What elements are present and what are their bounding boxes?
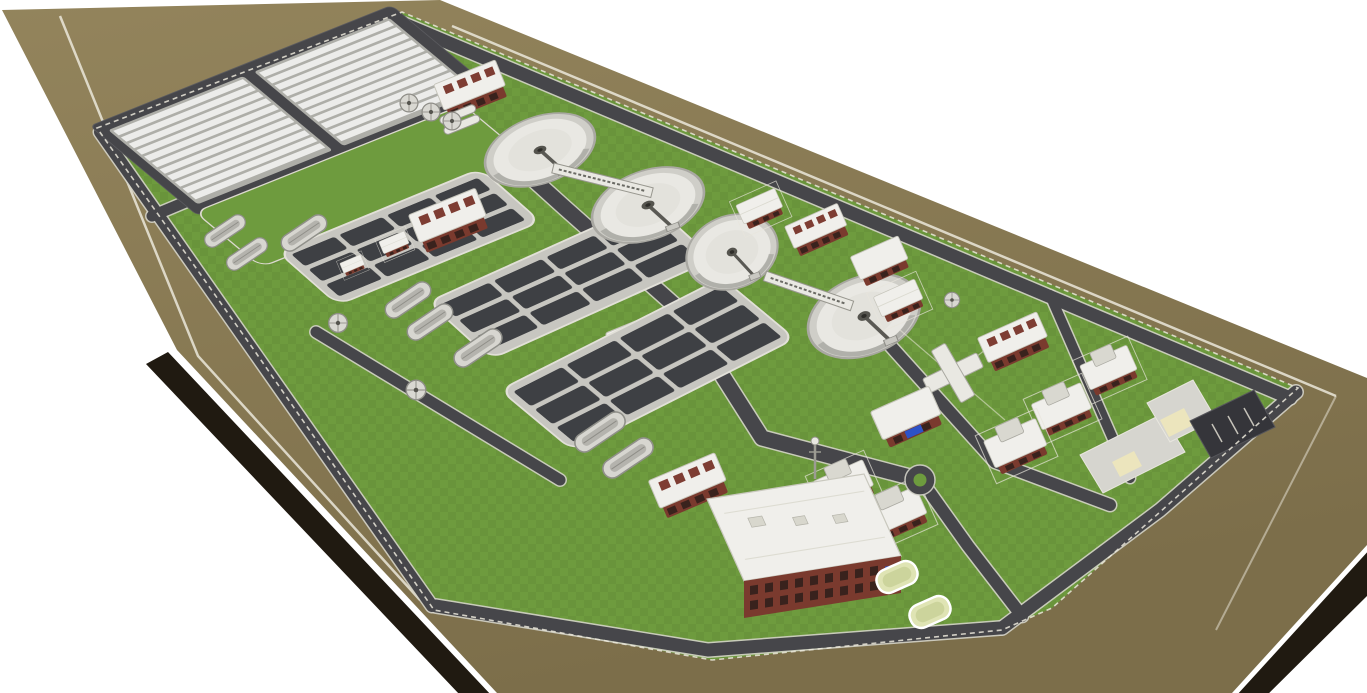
gravity-thickener-2 <box>406 380 426 400</box>
inlet-round-tank-3 <box>443 112 461 130</box>
inlet-round-tank-2 <box>422 103 440 121</box>
roundabout <box>905 465 935 495</box>
rendering-canvas <box>0 0 1367 693</box>
gravity-thickener-3 <box>944 292 959 307</box>
gravity-thickener-1 <box>329 314 348 333</box>
inlet-round-tank-1 <box>400 94 418 112</box>
site-rendering <box>0 0 1367 693</box>
